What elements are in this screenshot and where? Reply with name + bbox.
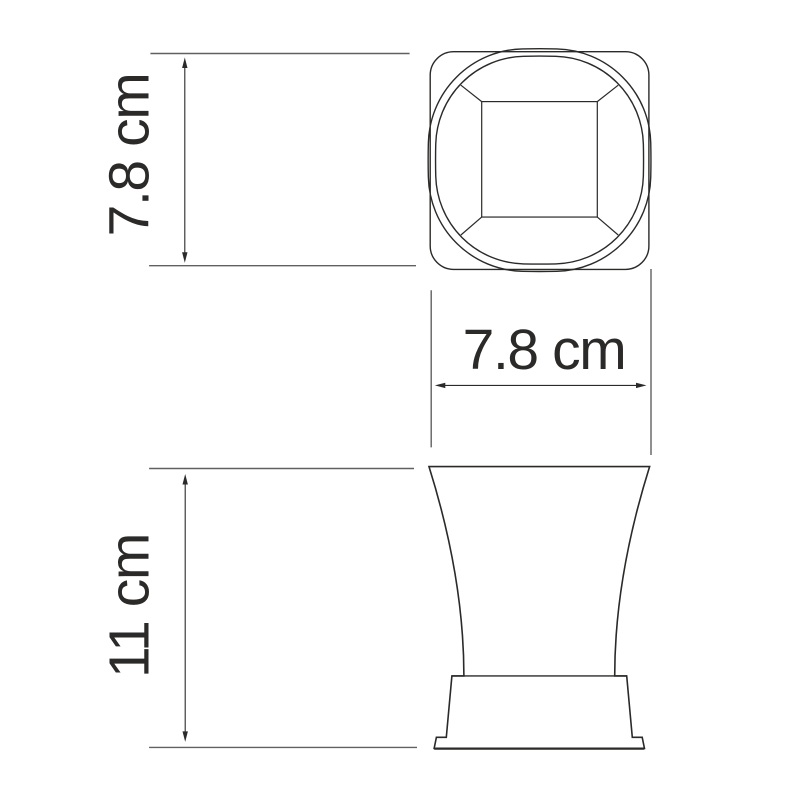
svg-text:7.8 cm: 7.8 cm bbox=[98, 74, 162, 237]
svg-text:7.8 cm: 7.8 cm bbox=[463, 318, 626, 382]
svg-text:11 cm: 11 cm bbox=[98, 534, 162, 678]
